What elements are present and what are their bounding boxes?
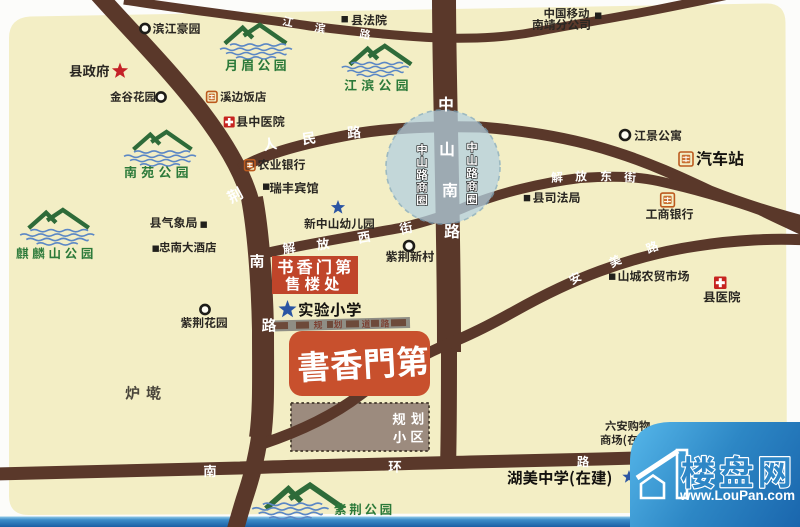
svg-text:www.LouPan.com: www.LouPan.com: [679, 488, 795, 503]
